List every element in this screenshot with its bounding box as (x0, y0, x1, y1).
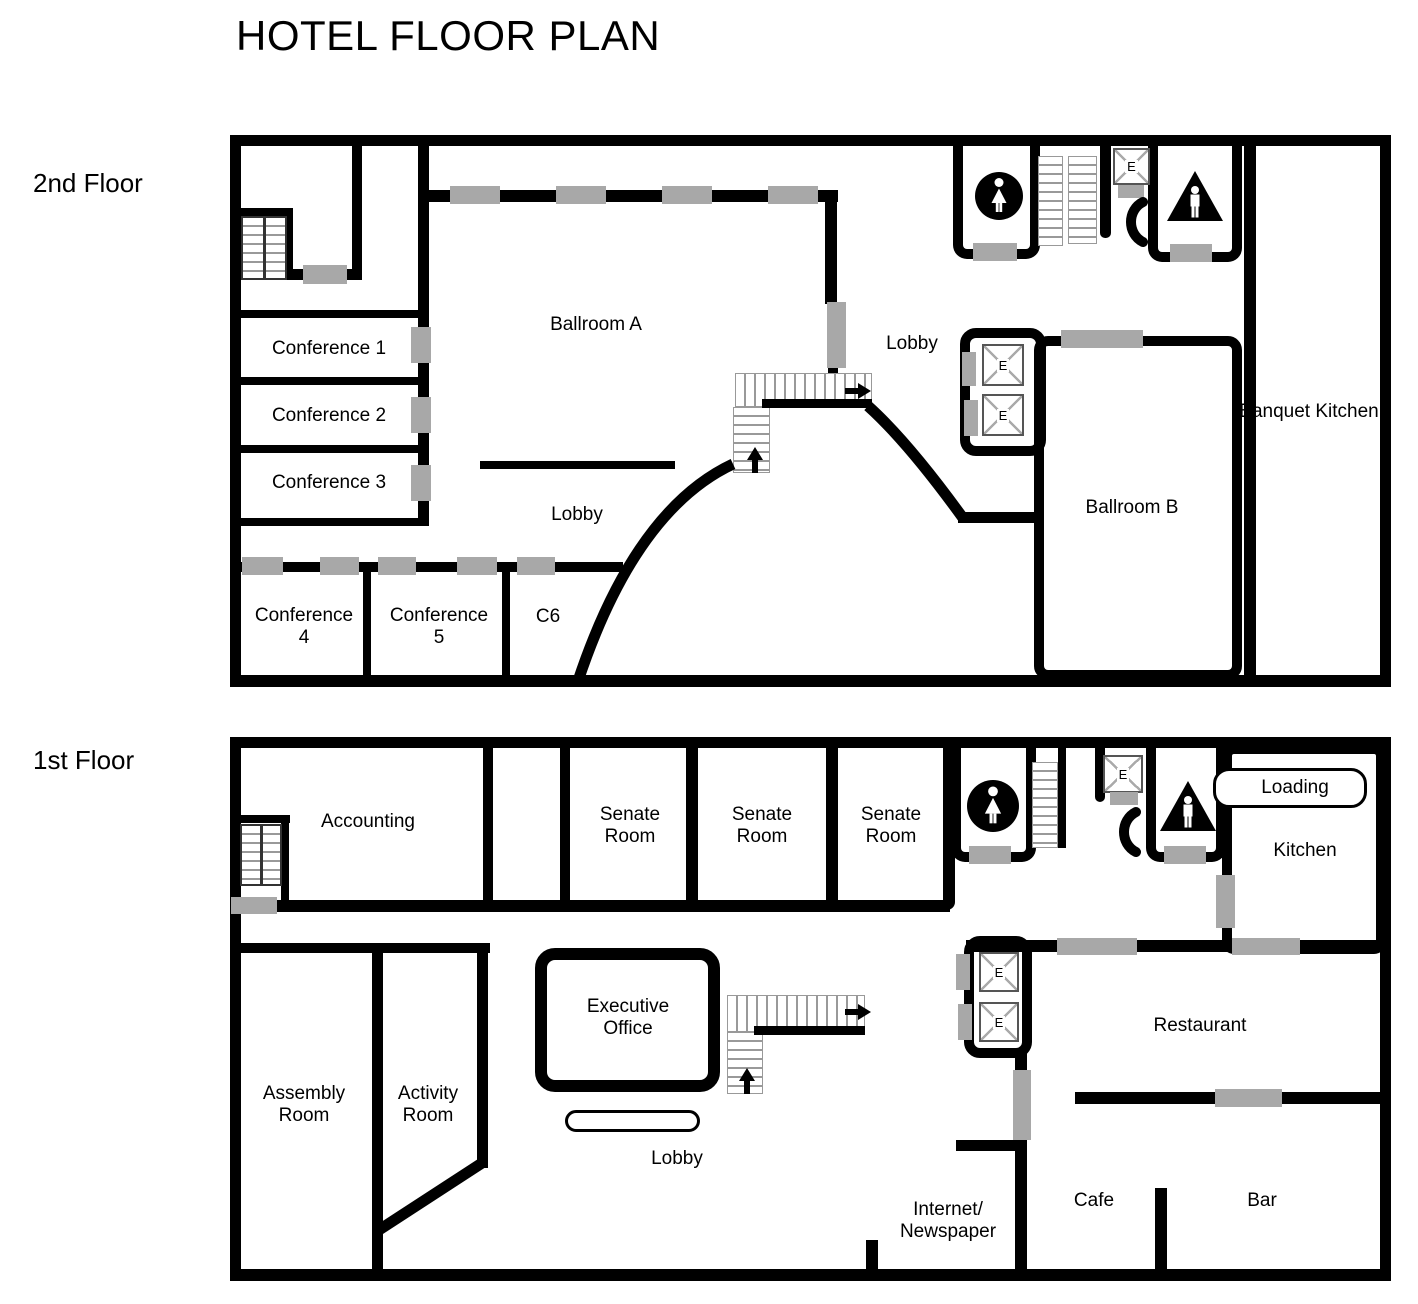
door-marker (1216, 875, 1235, 928)
wall (233, 562, 623, 572)
wall (241, 377, 429, 385)
elevator: E (982, 394, 1024, 436)
stair-steps (266, 218, 286, 278)
stairs (1038, 156, 1063, 246)
door-marker (411, 327, 431, 363)
wall (230, 135, 241, 687)
room-label-accounting: Accounting (321, 811, 415, 833)
wall (241, 445, 429, 453)
wall (826, 748, 838, 912)
door-marker (1232, 938, 1300, 955)
door-marker (958, 1004, 972, 1040)
door-marker (242, 557, 283, 575)
elevator: E (982, 344, 1024, 386)
door-marker (1013, 1070, 1031, 1140)
page-title: HOTEL FLOOR PLAN (236, 12, 660, 60)
room-label-internet-line2: Newspaper (900, 1221, 996, 1243)
stairs (241, 216, 287, 280)
stair-rail (754, 1026, 865, 1035)
door-marker (1170, 244, 1212, 262)
wall (483, 748, 493, 912)
room-label-ballroom-a: Ballroom A (550, 314, 642, 336)
room-label-ballroom-b: Ballroom B (1086, 497, 1179, 519)
right-arrow-icon (845, 383, 871, 399)
door-marker (411, 465, 431, 501)
room-label-c6: C6 (536, 606, 560, 628)
wall (1380, 135, 1391, 687)
room-label-activity-room: Activity Room (386, 1083, 471, 1127)
wall (956, 1140, 1021, 1151)
door-marker (973, 243, 1017, 261)
elevator: E (1113, 148, 1150, 185)
door-marker (1110, 792, 1138, 805)
door-marker (1215, 1089, 1282, 1107)
elevator-label: E (997, 409, 1010, 422)
door-marker (1057, 938, 1137, 955)
mens-restroom-icon (1166, 170, 1224, 222)
stair-steps (243, 218, 263, 278)
door-marker (450, 186, 500, 204)
stairs (1032, 762, 1058, 848)
wall (352, 146, 362, 280)
wall (1058, 748, 1066, 848)
wall (230, 135, 1391, 146)
room-label-bar: Bar (1247, 1190, 1277, 1212)
room-label-senate-room-3: Senate Room (851, 804, 931, 848)
room-label-conference-5: Conference 5 (384, 605, 494, 649)
door-marker (956, 954, 970, 990)
up-arrow-icon (739, 1068, 755, 1094)
stair-rail (762, 399, 872, 408)
room-label-banquet-kitchen: Banquet Kitchen (1239, 401, 1378, 423)
door-marker (303, 265, 347, 284)
womens-restroom-icon (967, 780, 1019, 832)
diagonal-wall-activity-room (379, 1163, 482, 1230)
door-marker (1164, 846, 1206, 864)
stairs (240, 824, 282, 886)
room-label-conference-4: Conference 4 (249, 605, 359, 649)
up-arrow-icon (747, 447, 763, 473)
door-marker (827, 302, 846, 368)
wall (477, 943, 488, 1168)
hotel-floor-plan: HOTEL FLOOR PLAN 2nd Floor 1st Floor (0, 0, 1418, 1304)
door-marker (969, 846, 1011, 864)
wall (1100, 146, 1111, 238)
stairs (1068, 156, 1097, 244)
mens-restroom-icon (1159, 780, 1217, 832)
wall (363, 570, 371, 681)
elevator-label: E (993, 1016, 1006, 1029)
room-label-senate-room-1: Senate Room (590, 804, 670, 848)
wall (866, 1240, 878, 1272)
door-marker (962, 352, 976, 386)
door-marker (517, 557, 555, 575)
floor2-label: 2nd Floor (33, 168, 143, 199)
room-label-kitchen: Kitchen (1273, 840, 1336, 862)
curved-wall-stairs (868, 406, 963, 518)
room-label-loading: Loading (1261, 777, 1329, 799)
room-label-senate-room-2: Senate Room (722, 804, 802, 848)
elevator-label: E (997, 359, 1010, 372)
elevator: E (979, 1002, 1019, 1042)
wall (241, 310, 429, 318)
room-label-conference-1: Conference 1 (272, 338, 386, 360)
wall (1155, 1188, 1167, 1272)
stair-steps (242, 826, 260, 884)
door-marker (556, 186, 606, 204)
wall (281, 815, 289, 900)
door-marker (768, 186, 818, 204)
wall (372, 953, 383, 1272)
door-marker (457, 557, 497, 575)
right-arrow-icon (845, 1004, 871, 1020)
door-marker (964, 400, 978, 436)
door-marker (378, 557, 416, 575)
wall (825, 190, 837, 304)
room-label-internet-newspaper: Internet/ Newspaper (900, 1199, 996, 1243)
reception-desk (565, 1110, 700, 1132)
door-marker (320, 557, 359, 575)
wall (560, 748, 570, 912)
room-label-assembly-room: Assembly Room (254, 1083, 354, 1127)
door-marker (1061, 330, 1143, 348)
room-label-conference-3: Conference 3 (272, 472, 386, 494)
door-marker (662, 186, 712, 204)
curved-wall-lobby (578, 464, 733, 681)
stair-steps (263, 826, 281, 884)
phone-icon (1122, 196, 1150, 248)
wall (230, 1269, 1391, 1281)
room-label-lobby: Lobby (651, 1148, 703, 1170)
door-marker (411, 397, 431, 433)
phone-icon (1115, 806, 1143, 858)
wall (480, 461, 675, 469)
elevator-label: E (1117, 768, 1130, 781)
elevator: E (979, 952, 1019, 992)
womens-restroom-icon (975, 172, 1023, 220)
room-label-restaurant: Restaurant (1154, 1015, 1247, 1037)
room-label-internet-line1: Internet/ (900, 1199, 996, 1221)
door-marker (231, 897, 277, 914)
wall (241, 518, 429, 526)
room-label-cafe: Cafe (1074, 1190, 1114, 1212)
room-label-lobby-center: Lobby (551, 504, 603, 526)
wall (502, 570, 510, 681)
elevator-label: E (1125, 160, 1138, 173)
wall (277, 900, 950, 912)
wall (958, 512, 1044, 523)
wall (241, 943, 490, 953)
room-label-executive-office: Executive Office (573, 996, 683, 1040)
room-label-conference-2: Conference 2 (272, 405, 386, 427)
room-label-lobby-upper: Lobby (886, 333, 938, 355)
elevator-label: E (993, 966, 1006, 979)
wall (230, 737, 1391, 748)
elevator: E (1103, 755, 1143, 793)
wall (1015, 1136, 1027, 1272)
wall (686, 748, 698, 912)
floor1-label: 1st Floor (33, 745, 134, 776)
